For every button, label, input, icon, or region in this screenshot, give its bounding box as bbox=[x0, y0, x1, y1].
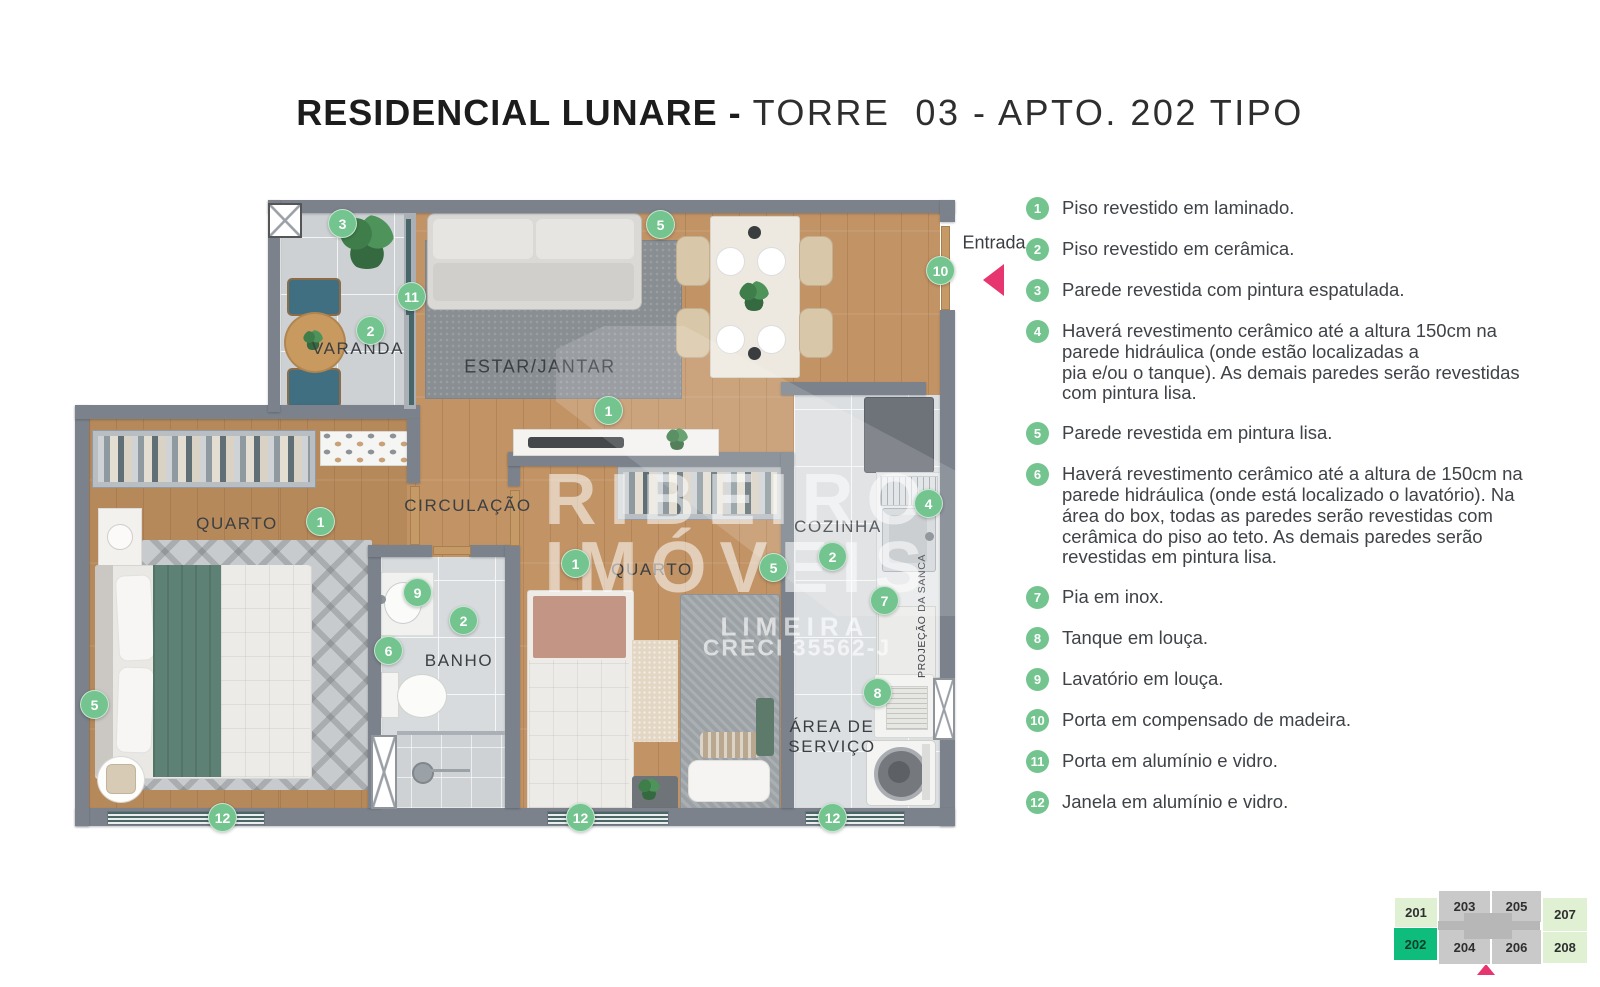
plan-badge-12: 12 bbox=[818, 803, 847, 832]
plan-badge-12: 12 bbox=[566, 803, 595, 832]
legend-text-11: Porta em alumínio e vidro. bbox=[1062, 750, 1278, 772]
plan-badge-1: 1 bbox=[561, 549, 590, 578]
plan-badge-3: 3 bbox=[328, 209, 357, 238]
legend-badge-11: 11 bbox=[1026, 750, 1049, 773]
legend-badge-7: 7 bbox=[1026, 586, 1049, 609]
bed3-cushion bbox=[700, 732, 760, 758]
dining-chair-3 bbox=[799, 236, 833, 286]
washer-panel bbox=[922, 744, 930, 800]
balcony-lounge-chair-2 bbox=[287, 368, 341, 408]
title-unit: TORRE 03 - APTO. 202 TIPO bbox=[753, 92, 1304, 133]
plan-badge-1: 1 bbox=[306, 507, 335, 536]
plan-badge-2: 2 bbox=[356, 316, 385, 345]
plan-badge-8: 8 bbox=[863, 678, 892, 707]
legend-item-7: 7Pia em inox. bbox=[1026, 586, 1542, 609]
wall-bath-top-left bbox=[368, 545, 432, 557]
wall-right-upper bbox=[940, 200, 955, 222]
legend-badge-1: 1 bbox=[1026, 197, 1049, 220]
bedroom1-wardrobe bbox=[92, 430, 316, 488]
room-label-banho: BANHO bbox=[425, 651, 493, 671]
legend-badge-3: 3 bbox=[1026, 279, 1049, 302]
legend-text-4: Haverá revestimento cerâmico até a altur… bbox=[1062, 320, 1520, 404]
floor-plan-page: RESIDENCIAL LUNARE - TORRE 03 - APTO. 20… bbox=[0, 0, 1600, 987]
sofa-cushion-left bbox=[433, 219, 533, 259]
dining-chair-4 bbox=[799, 308, 833, 358]
legend-item-12: 12Janela em alumínio e vidro. bbox=[1026, 791, 1542, 814]
legend-text-3: Parede revestida com pintura espatulada. bbox=[1062, 279, 1404, 301]
watermark-creci: CRECI 35562-J bbox=[703, 635, 891, 662]
room-label-circulacao: CIRCULAÇÃO bbox=[404, 496, 531, 516]
legend-badge-9: 9 bbox=[1026, 668, 1049, 691]
bedroom1-side-tray bbox=[106, 764, 136, 794]
plan-badge-10: 10 bbox=[926, 256, 955, 285]
plan-badge-9: 9 bbox=[403, 578, 432, 607]
washer-drum-center bbox=[888, 761, 910, 783]
legend-item-11: 11Porta em alumínio e vidro. bbox=[1026, 750, 1542, 773]
plate-2 bbox=[757, 247, 786, 276]
legend-text-1: Piso revestido em laminado. bbox=[1062, 197, 1294, 219]
bedroom1-wardrobe-clothes bbox=[98, 436, 310, 482]
legend-badge-10: 10 bbox=[1026, 709, 1049, 732]
keyplan-unit-202: 202 bbox=[1393, 927, 1438, 961]
legend-item-5: 5Parede revestida em pintura lisa. bbox=[1026, 422, 1542, 445]
entrance-arrow-icon bbox=[983, 264, 1004, 296]
bed1-green-blanket bbox=[153, 565, 221, 777]
ac-unit-balcony bbox=[268, 203, 302, 238]
bed1-pillow-1 bbox=[115, 574, 155, 662]
plan-badge-7: 7 bbox=[870, 586, 899, 615]
legend-item-1: 1Piso revestido em laminado. bbox=[1026, 197, 1542, 220]
bed1-duvet bbox=[221, 565, 310, 777]
keyplan-unit-201: 201 bbox=[1394, 897, 1438, 928]
dining-decor-2 bbox=[748, 347, 761, 360]
legend-text-8: Tanque em louça. bbox=[1062, 627, 1208, 649]
bed1-pillow-2 bbox=[116, 666, 155, 753]
legend-item-2: 2Piso revestido em cerâmica. bbox=[1026, 238, 1542, 261]
sofa-seat bbox=[433, 263, 634, 301]
legend-item-10: 10Porta em compensado de madeira. bbox=[1026, 709, 1542, 732]
balcony-lounge-chair-1 bbox=[287, 278, 341, 316]
wall-bath-top-right bbox=[470, 545, 508, 557]
legend-badge-8: 8 bbox=[1026, 627, 1049, 650]
laundry-tank-basin bbox=[886, 686, 928, 730]
legend-item-9: 9Lavatório em louça. bbox=[1026, 668, 1542, 691]
room-label-varanda: VARANDA bbox=[312, 339, 404, 359]
plan-badge-12: 12 bbox=[208, 803, 237, 832]
legend-badge-12: 12 bbox=[1026, 791, 1049, 814]
plan-badge-11: 11 bbox=[397, 282, 426, 311]
plan-badge-4: 4 bbox=[914, 489, 943, 518]
bed3-pillow bbox=[688, 760, 770, 802]
legend-item-6: 6Haverá revestimento cerâmico até a altu… bbox=[1026, 463, 1542, 568]
plate-4 bbox=[757, 325, 786, 354]
legend: 1Piso revestido em laminado.2Piso revest… bbox=[1026, 197, 1542, 832]
wall-top bbox=[268, 200, 955, 213]
legend-text-9: Lavatório em louça. bbox=[1062, 668, 1223, 690]
shower-divider bbox=[397, 731, 505, 735]
dining-decor-1 bbox=[748, 226, 761, 239]
plan-badge-5: 5 bbox=[646, 210, 675, 239]
bed2-duvet bbox=[529, 660, 629, 808]
shaft-bath bbox=[371, 735, 397, 809]
room-label-quarto-1: QUARTO bbox=[196, 514, 278, 534]
room-label-area-servico: ÁREA DE SERVIÇO bbox=[788, 717, 875, 757]
plan-badge-2: 2 bbox=[818, 542, 847, 571]
wall-left bbox=[75, 405, 89, 826]
wall-under-balcony bbox=[75, 405, 420, 419]
keyplan: 201202203204205206207208 bbox=[1363, 868, 1593, 980]
legend-item-3: 3Parede revestida com pintura espatulada… bbox=[1026, 279, 1542, 302]
entrance-label: Entrada bbox=[962, 233, 1025, 254]
keyplan-unit-208: 208 bbox=[1542, 931, 1588, 964]
dining-chair-1 bbox=[676, 236, 710, 286]
bedroom2-rug bbox=[632, 640, 678, 742]
keyplan-unit-207: 207 bbox=[1542, 897, 1588, 932]
legend-text-2: Piso revestido em cerâmica. bbox=[1062, 238, 1294, 260]
plan-badge-1: 1 bbox=[594, 396, 623, 425]
window-bedroom1 bbox=[107, 811, 265, 825]
bedroom2-plant bbox=[638, 778, 660, 800]
legend-text-7: Pia em inox. bbox=[1062, 586, 1164, 608]
plan-badge-2: 2 bbox=[449, 606, 478, 635]
keyplan-corridor-center bbox=[1464, 913, 1512, 939]
plan-badge-5: 5 bbox=[759, 553, 788, 582]
plan-badge-5: 5 bbox=[80, 690, 109, 719]
window-service-side bbox=[933, 678, 955, 740]
bedroom1-lamp bbox=[107, 524, 133, 550]
balcony-glass-door-panel-2 bbox=[409, 306, 414, 405]
plan-badge-6: 6 bbox=[374, 636, 403, 665]
legend-item-4: 4Haverá revestimento cerâmico até a altu… bbox=[1026, 320, 1542, 404]
page-title: RESIDENCIAL LUNARE - TORRE 03 - APTO. 20… bbox=[0, 92, 1600, 134]
shoe-rack bbox=[320, 431, 409, 466]
wall-bedroom1-right bbox=[407, 419, 420, 483]
legend-text-12: Janela em alumínio e vidro. bbox=[1062, 791, 1288, 813]
bath-door bbox=[433, 546, 471, 555]
legend-item-8: 8Tanque em louça. bbox=[1026, 627, 1542, 650]
legend-badge-5: 5 bbox=[1026, 422, 1049, 445]
toilet-bowl bbox=[397, 674, 447, 718]
legend-badge-4: 4 bbox=[1026, 320, 1049, 343]
shower-head bbox=[412, 762, 434, 784]
legend-text-10: Porta em compensado de madeira. bbox=[1062, 709, 1351, 731]
wall-bath-bedroom2 bbox=[505, 545, 520, 808]
bed3-towels bbox=[756, 698, 774, 756]
legend-badge-2: 2 bbox=[1026, 238, 1049, 261]
legend-badge-6: 6 bbox=[1026, 463, 1049, 486]
sofa-cushion-right bbox=[536, 219, 634, 259]
title-project: RESIDENCIAL LUNARE - bbox=[296, 92, 752, 133]
legend-text-6: Haverá revestimento cerâmico até a altur… bbox=[1062, 463, 1523, 568]
legend-text-5: Parede revestida em pintura lisa. bbox=[1062, 422, 1332, 444]
bed1-headboard bbox=[95, 565, 113, 777]
dining-centerpiece bbox=[739, 281, 769, 311]
plate-1 bbox=[716, 247, 745, 276]
shower-arm bbox=[430, 769, 470, 772]
keyplan-entry-arrow-icon bbox=[1477, 964, 1495, 975]
